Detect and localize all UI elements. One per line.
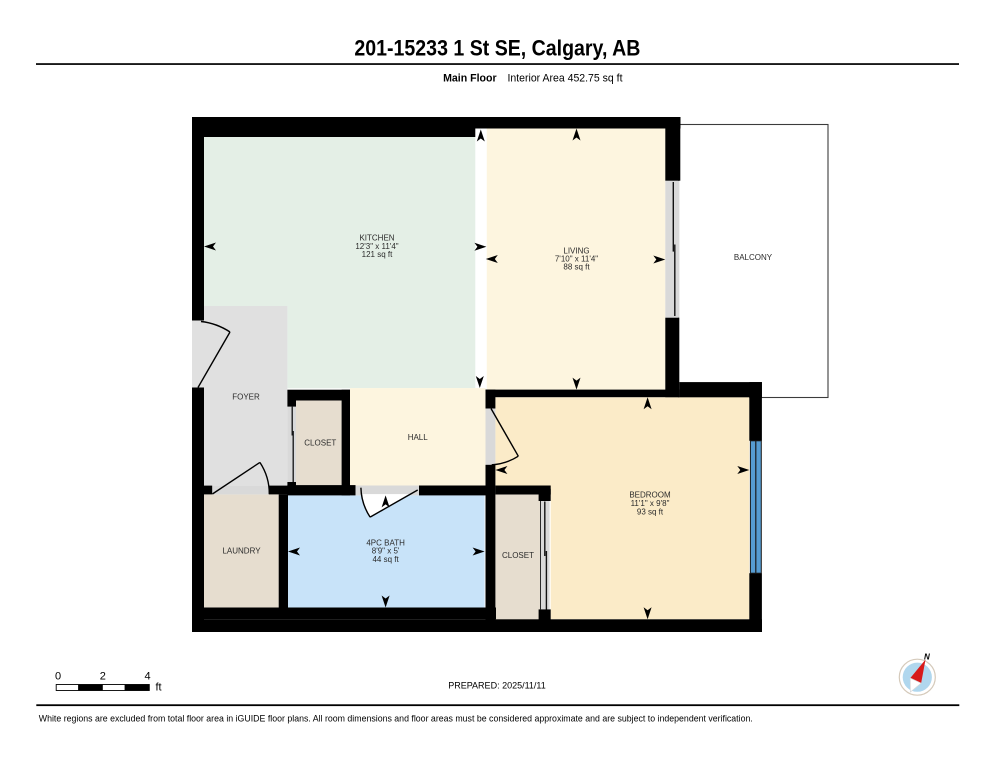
svg-text:201-15233 1 St SE, Calgary, AB: 201-15233 1 St SE, Calgary, AB — [354, 35, 640, 60]
svg-text:Interior Area 452.75 sq ft: Interior Area 452.75 sq ft — [508, 73, 623, 85]
svg-text:HALL: HALL — [408, 433, 429, 442]
svg-text:CLOSET: CLOSET — [502, 551, 534, 560]
svg-text:121 sq ft: 121 sq ft — [362, 250, 393, 259]
svg-text:44 sq ft: 44 sq ft — [372, 555, 399, 564]
svg-text:LAUNDRY: LAUNDRY — [222, 547, 261, 556]
svg-text:BALCONY: BALCONY — [734, 253, 773, 262]
svg-text:93 sq ft: 93 sq ft — [637, 507, 664, 516]
svg-text:4: 4 — [144, 671, 150, 683]
svg-text:PREPARED: 2025/11/11: PREPARED: 2025/11/11 — [448, 680, 546, 690]
svg-text:FOYER: FOYER — [232, 393, 260, 402]
svg-text:White regions are excluded fro: White regions are excluded from total fl… — [39, 714, 753, 724]
svg-text:Main Floor: Main Floor — [443, 73, 497, 85]
svg-text:88 sq ft: 88 sq ft — [563, 263, 590, 272]
svg-text:ft: ft — [156, 682, 162, 694]
svg-text:N: N — [924, 653, 930, 662]
svg-text:2: 2 — [100, 671, 106, 683]
svg-text:0: 0 — [55, 671, 61, 683]
svg-text:CLOSET: CLOSET — [304, 439, 336, 448]
